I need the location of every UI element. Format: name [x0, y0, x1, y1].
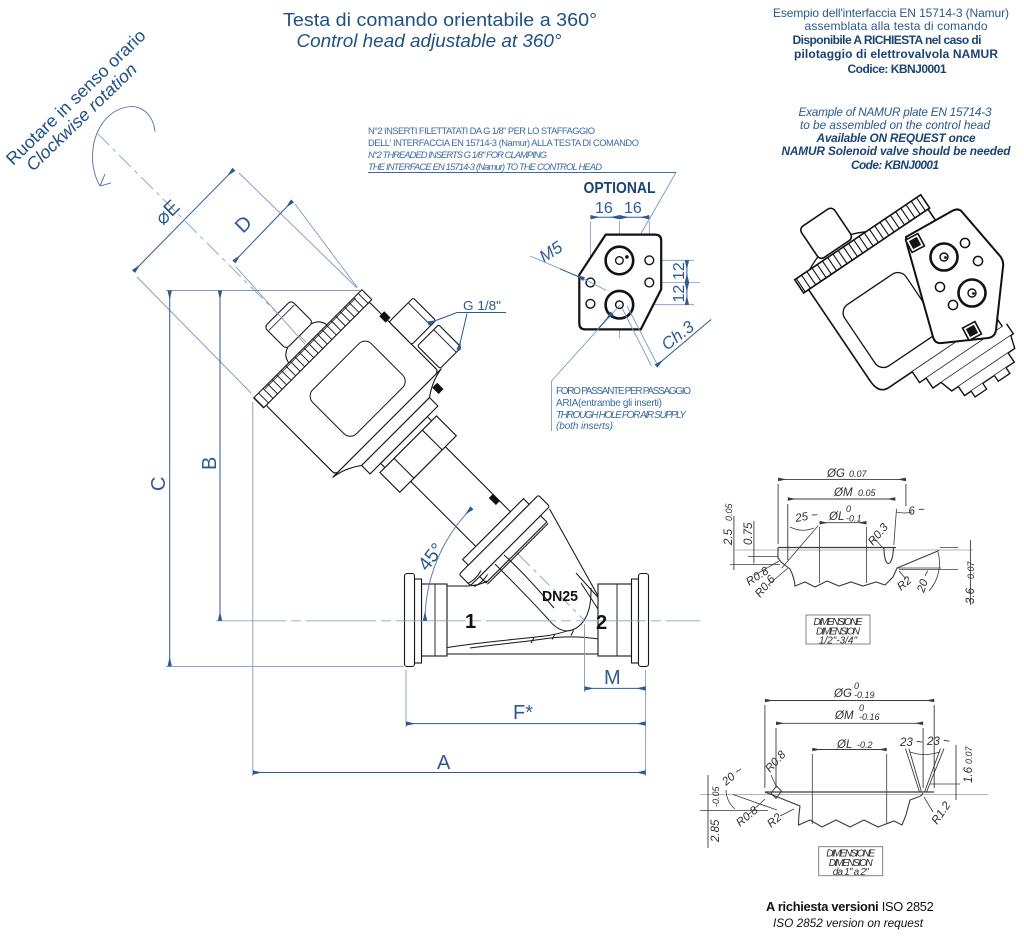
svg-text:assemblata alla testa di coman: assemblata alla testa di comando [805, 19, 988, 33]
svg-text:23 ~: 23 ~ [899, 737, 923, 749]
svg-text:3.6: 3.6 [965, 587, 977, 604]
svg-text:Esempio dell'interfaccia EN 15: Esempio dell'interfaccia EN 15714-3 (Nam… [773, 6, 1009, 20]
svg-text:12: 12 [671, 262, 688, 280]
svg-text:Example of NAMUR plate EN 1571: Example of NAMUR plate EN 15714-3 [799, 105, 992, 119]
svg-text:NAMUR Solenoid valve should be: NAMUR Solenoid valve should be needed [782, 144, 1012, 158]
svg-text:ØG: ØG [833, 688, 852, 700]
svg-text:ØL: ØL [836, 739, 852, 751]
svg-text:Testa di comando orientabile a: Testa di comando orientabile a 360° [283, 9, 597, 30]
svg-text:pilotaggio di elettrovalvola N: pilotaggio di elettrovalvola NAMUR [794, 47, 998, 61]
svg-text:1.6: 1.6 [963, 766, 975, 783]
svg-text:(both inserts): (both inserts) [556, 421, 613, 432]
svg-text:2.5: 2.5 [723, 528, 735, 546]
svg-text:-0.16: -0.16 [859, 712, 880, 722]
svg-text:6 ~: 6 ~ [908, 504, 926, 518]
svg-text:F*: F* [513, 702, 533, 724]
svg-text:R2: R2 [765, 811, 784, 830]
svg-text:C: C [148, 477, 170, 491]
svg-text:-0.05: -0.05 [711, 785, 721, 807]
svg-text:Code: KBNJ0001: Code: KBNJ0001 [851, 158, 939, 172]
svg-text:-0.1: -0.1 [846, 514, 862, 524]
svg-text:0.07: 0.07 [964, 745, 974, 764]
svg-text:da 1" a 2": da 1" a 2" [833, 867, 869, 878]
svg-text:16: 16 [595, 200, 613, 217]
svg-text:to be assembled on the control: to be assembled on the control head [800, 118, 990, 132]
svg-text:2: 2 [596, 612, 607, 634]
svg-text:12: 12 [671, 285, 688, 303]
svg-text:ØL: ØL [828, 511, 844, 523]
svg-text:16: 16 [624, 200, 642, 217]
svg-text:Available ON REQUEST once: Available ON REQUEST once [816, 131, 976, 145]
svg-text:N°2 INSERTI FILETTATATI DA G 1: N°2 INSERTI FILETTATATI DA G 1/8" PER LO… [368, 125, 595, 136]
svg-text:OPTIONAL: OPTIONAL [584, 180, 656, 197]
svg-text:DELL' INTERFACCIA EN 15714-3 (: DELL' INTERFACCIA EN 15714-3 (Namur) ALL… [368, 137, 639, 148]
svg-text:-0.2: -0.2 [857, 740, 873, 750]
svg-text:1: 1 [465, 611, 476, 633]
svg-text:0: 0 [846, 504, 851, 514]
svg-text:0.05: 0.05 [724, 502, 734, 521]
svg-text:M: M [604, 667, 621, 689]
svg-text:B: B [199, 457, 221, 470]
svg-text:Control head adjustable at 360: Control head adjustable at 360° [297, 31, 562, 51]
svg-text:20 ~: 20 ~ [915, 568, 934, 595]
svg-text:ØM: ØM [834, 710, 854, 722]
svg-text:Codice: KBNJ0001: Codice: KBNJ0001 [848, 62, 947, 76]
svg-text:FORO PASSANTE PER PASSAGGIO: FORO PASSANTE PER PASSAGGIO [556, 386, 691, 397]
svg-text:Ch.3: Ch.3 [658, 317, 698, 354]
svg-text:0.07: 0.07 [966, 560, 976, 579]
svg-text:45°: 45° [414, 540, 448, 576]
svg-text:23 ~: 23 ~ [926, 736, 950, 748]
svg-text:ARIA(entrambe gli inserti): ARIA(entrambe gli inserti) [556, 398, 662, 409]
svg-text:G 1/8": G 1/8" [463, 299, 501, 313]
svg-text:D: D [231, 212, 257, 238]
svg-text:ØM: ØM [833, 487, 853, 499]
svg-text:A: A [437, 752, 451, 774]
svg-text:DN25: DN25 [542, 588, 578, 605]
svg-text:A richiesta versioni ISO 2852: A richiesta versioni ISO 2852 [766, 899, 934, 914]
svg-text:N°2 THREADED INSERTS G 1/8" FO: N°2 THREADED INSERTS G 1/8" FOR CLAMPING [368, 149, 547, 160]
svg-text:M5: M5 [536, 237, 567, 266]
svg-text:R0.3: R0.3 [866, 521, 891, 548]
svg-text:ISO 2852 version on request: ISO 2852 version on request [773, 916, 924, 930]
svg-text:0.75: 0.75 [743, 522, 755, 545]
svg-text:25 ~: 25 ~ [793, 509, 819, 525]
svg-text:0.05: 0.05 [858, 488, 877, 498]
svg-text:R0.8: R0.8 [734, 804, 761, 829]
svg-text:1/2"-3/4": 1/2"-3/4" [819, 636, 857, 647]
svg-text:2.85: 2.85 [710, 819, 722, 843]
svg-text:20 ~: 20 ~ [719, 764, 745, 789]
svg-text:THROUGH HOLE FOR AIR SUPPLY: THROUGH HOLE FOR AIR SUPPLY [556, 410, 687, 421]
svg-text:Disponibile A RICHIESTA nel ca: Disponibile A RICHIESTA nel caso di [793, 33, 982, 47]
svg-text:THE INTERFACE EN 15714-3 (Namu: THE INTERFACE EN 15714-3 (Namur) TO THE … [368, 161, 602, 172]
svg-text:-0.19: -0.19 [854, 690, 875, 700]
svg-text:R2: R2 [895, 574, 914, 593]
svg-text:ØG: ØG [826, 468, 845, 480]
svg-text:R1.2: R1.2 [930, 799, 954, 826]
svg-text:Ruotare in senso orario: Ruotare in senso orario [2, 25, 150, 169]
svg-text:0.07: 0.07 [849, 469, 868, 479]
